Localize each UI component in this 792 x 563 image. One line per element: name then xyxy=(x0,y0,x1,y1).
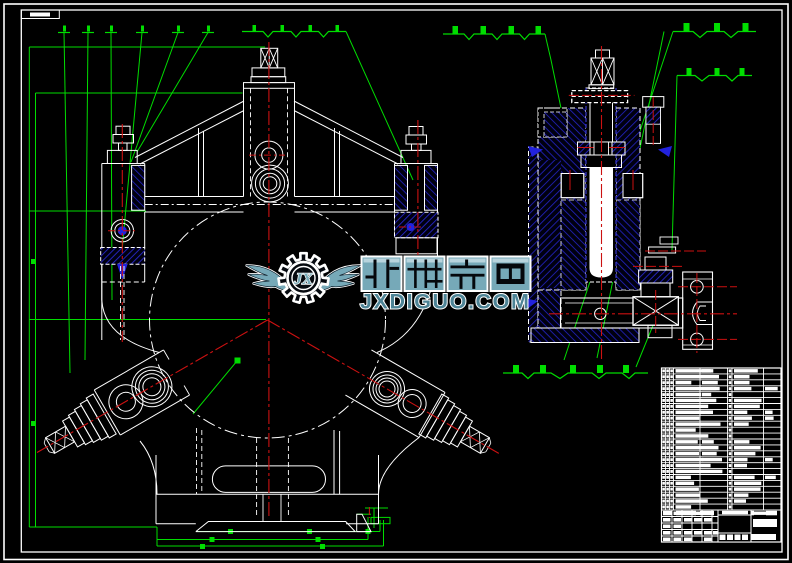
svg-text:JX: JX xyxy=(293,271,313,288)
svg-text:JXDIGUO.COM: JXDIGUO.COM xyxy=(360,290,531,314)
